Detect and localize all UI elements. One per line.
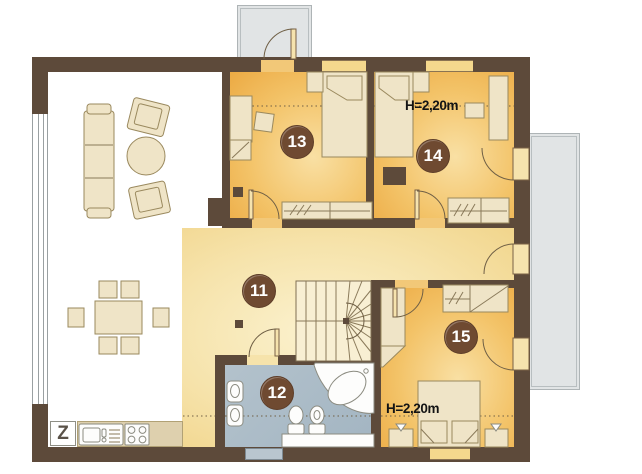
room15-terrace-door (483, 338, 529, 370)
kitchen-symbol-label: Z (50, 421, 76, 446)
stool (465, 103, 484, 118)
fixtures-overlay (0, 0, 642, 474)
hall-terrace-door (484, 244, 529, 274)
nightstand (389, 424, 413, 447)
sofa (84, 104, 114, 218)
coffee-table (127, 137, 165, 175)
wardrobe (443, 285, 508, 312)
nightstand (307, 72, 323, 92)
bed (375, 72, 413, 157)
room15-door (393, 289, 423, 317)
stairs (296, 281, 371, 361)
balcony-door (264, 29, 296, 59)
ceiling-height-label-room14: H=2,20m (405, 98, 458, 113)
nightstand (413, 72, 429, 92)
desk (489, 76, 508, 140)
toilet (288, 406, 304, 434)
badge-room-13: 13 (280, 125, 314, 159)
bathroom-door (249, 329, 279, 357)
wardrobe (282, 202, 372, 219)
dresser (230, 96, 252, 142)
armchair (127, 97, 171, 137)
washbasin (227, 381, 243, 402)
room14-terrace-door (482, 148, 529, 180)
badge-room-11: 11 (242, 274, 276, 308)
bidet (309, 406, 325, 434)
stool (254, 112, 274, 132)
floor-plan: 11 12 13 14 15 H=2,20m H=2,20m Z (0, 0, 642, 474)
room14-door (415, 190, 445, 219)
dining-table (95, 301, 142, 334)
washbasin (227, 405, 243, 426)
wardrobe (448, 198, 509, 223)
desk-chair (230, 140, 251, 160)
nightstand (485, 424, 508, 447)
ceiling-height-label-room15: H=2,20m (386, 401, 439, 416)
room13-door (249, 190, 279, 219)
bathtub (314, 363, 374, 413)
stove (125, 424, 149, 445)
badge-room-14: 14 (416, 139, 450, 173)
bathroom-counter (282, 434, 374, 447)
badge-room-15: 15 (444, 320, 478, 354)
badge-room-12: 12 (260, 376, 294, 410)
kitchen-sink (79, 424, 123, 445)
armchair (128, 181, 171, 220)
bed (322, 72, 367, 157)
